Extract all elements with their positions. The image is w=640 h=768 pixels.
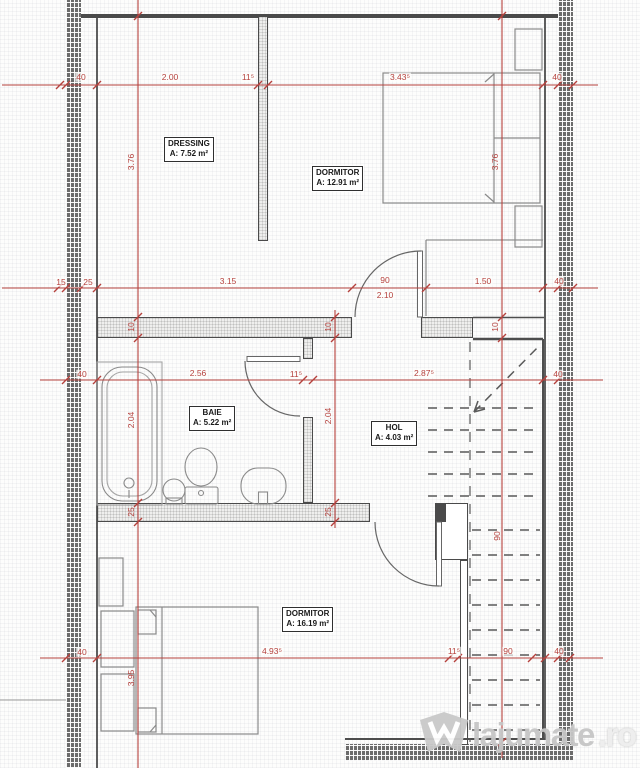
dim-label: 10 — [324, 321, 333, 332]
stair-direction-arrow — [474, 344, 541, 412]
dim-label: 3.15 — [219, 277, 238, 286]
dim-label: 90 — [493, 530, 502, 541]
dim-label: 11⁵ — [447, 647, 461, 656]
floorplan-drawing — [0, 0, 640, 768]
bidet — [241, 468, 286, 504]
dim-label: 40 — [553, 277, 564, 286]
dim-label: 4.93⁵ — [261, 647, 283, 656]
dim-label: 2.56 — [189, 369, 208, 378]
dim-label: 40 — [75, 73, 86, 82]
room-area: A: 4.03 m² — [375, 433, 413, 443]
dim-label: 40 — [551, 73, 562, 82]
floorplan-page: DRESSING A: 7.52 m² DORMITOR A: 12.91 m²… — [0, 0, 640, 768]
dim-label: 3.95 — [127, 669, 136, 688]
dim-label: 25 — [127, 506, 136, 517]
dim-label-door-height: 2.10 — [376, 291, 395, 300]
bed-top-dormitor — [383, 29, 542, 247]
room-label-baie: BAIE A: 5.22 m² — [189, 406, 235, 431]
nightstand — [515, 29, 542, 70]
room-name: HOL — [375, 423, 413, 433]
dim-label: 25 — [82, 278, 93, 287]
dim-label: 3.76 — [127, 153, 136, 172]
dim-label: 25 — [324, 506, 333, 517]
dim-label: 40 — [552, 370, 563, 379]
bed-bottom-dormitor — [99, 558, 258, 734]
dimension-ticks — [54, 12, 577, 746]
room-area: A: 7.52 m² — [168, 149, 210, 159]
staircase — [428, 342, 541, 742]
room-name: DORMITOR — [286, 609, 329, 619]
room-label-dormitor-top: DORMITOR A: 12.91 m² — [312, 166, 363, 191]
dim-label: 2.00 — [161, 73, 180, 82]
nightstand — [515, 206, 542, 247]
door-dormitor-bottom — [375, 522, 442, 586]
dim-label: 40 — [76, 648, 87, 657]
dim-label: 2.04 — [324, 407, 333, 426]
dim-label: 40 — [553, 647, 564, 656]
toilet — [185, 448, 218, 504]
dim-label: 15 — [55, 278, 66, 287]
room-area: A: 5.22 m² — [193, 418, 231, 428]
room-name: BAIE — [193, 408, 231, 418]
room-area: A: 12.91 m² — [316, 178, 359, 188]
dim-label: 2.87⁵ — [413, 369, 435, 378]
room-label-dormitor-bottom: DORMITOR A: 16.19 m² — [282, 607, 333, 632]
door-baie — [245, 357, 300, 417]
room-name: DRESSING — [168, 139, 210, 149]
dim-label: 3.76 — [491, 153, 500, 172]
room-area: A: 16.19 m² — [286, 619, 329, 629]
dim-label: 1.50 — [474, 277, 493, 286]
dim-label: 2.04 — [127, 411, 136, 430]
pedestal-sink — [163, 479, 185, 504]
dim-label: 11⁵ — [241, 73, 255, 82]
dim-label: 40 — [76, 370, 87, 379]
dim-label: 10 — [127, 321, 136, 332]
dim-label: 3.43⁵ — [389, 73, 411, 82]
stair-treads — [428, 408, 540, 730]
dim-label-door-width: 90 — [379, 276, 390, 285]
room-name: DORMITOR — [316, 168, 359, 178]
dim-label: 10 — [491, 321, 500, 332]
room-label-hol: HOL A: 4.03 m² — [371, 421, 417, 446]
dim-label: 11⁵ — [289, 370, 303, 379]
bathtub — [97, 362, 162, 505]
nightstand — [101, 611, 134, 667]
dim-label: 90 — [502, 647, 513, 656]
room-label-dressing: DRESSING A: 7.52 m² — [164, 137, 214, 162]
wardrobe — [99, 558, 123, 606]
